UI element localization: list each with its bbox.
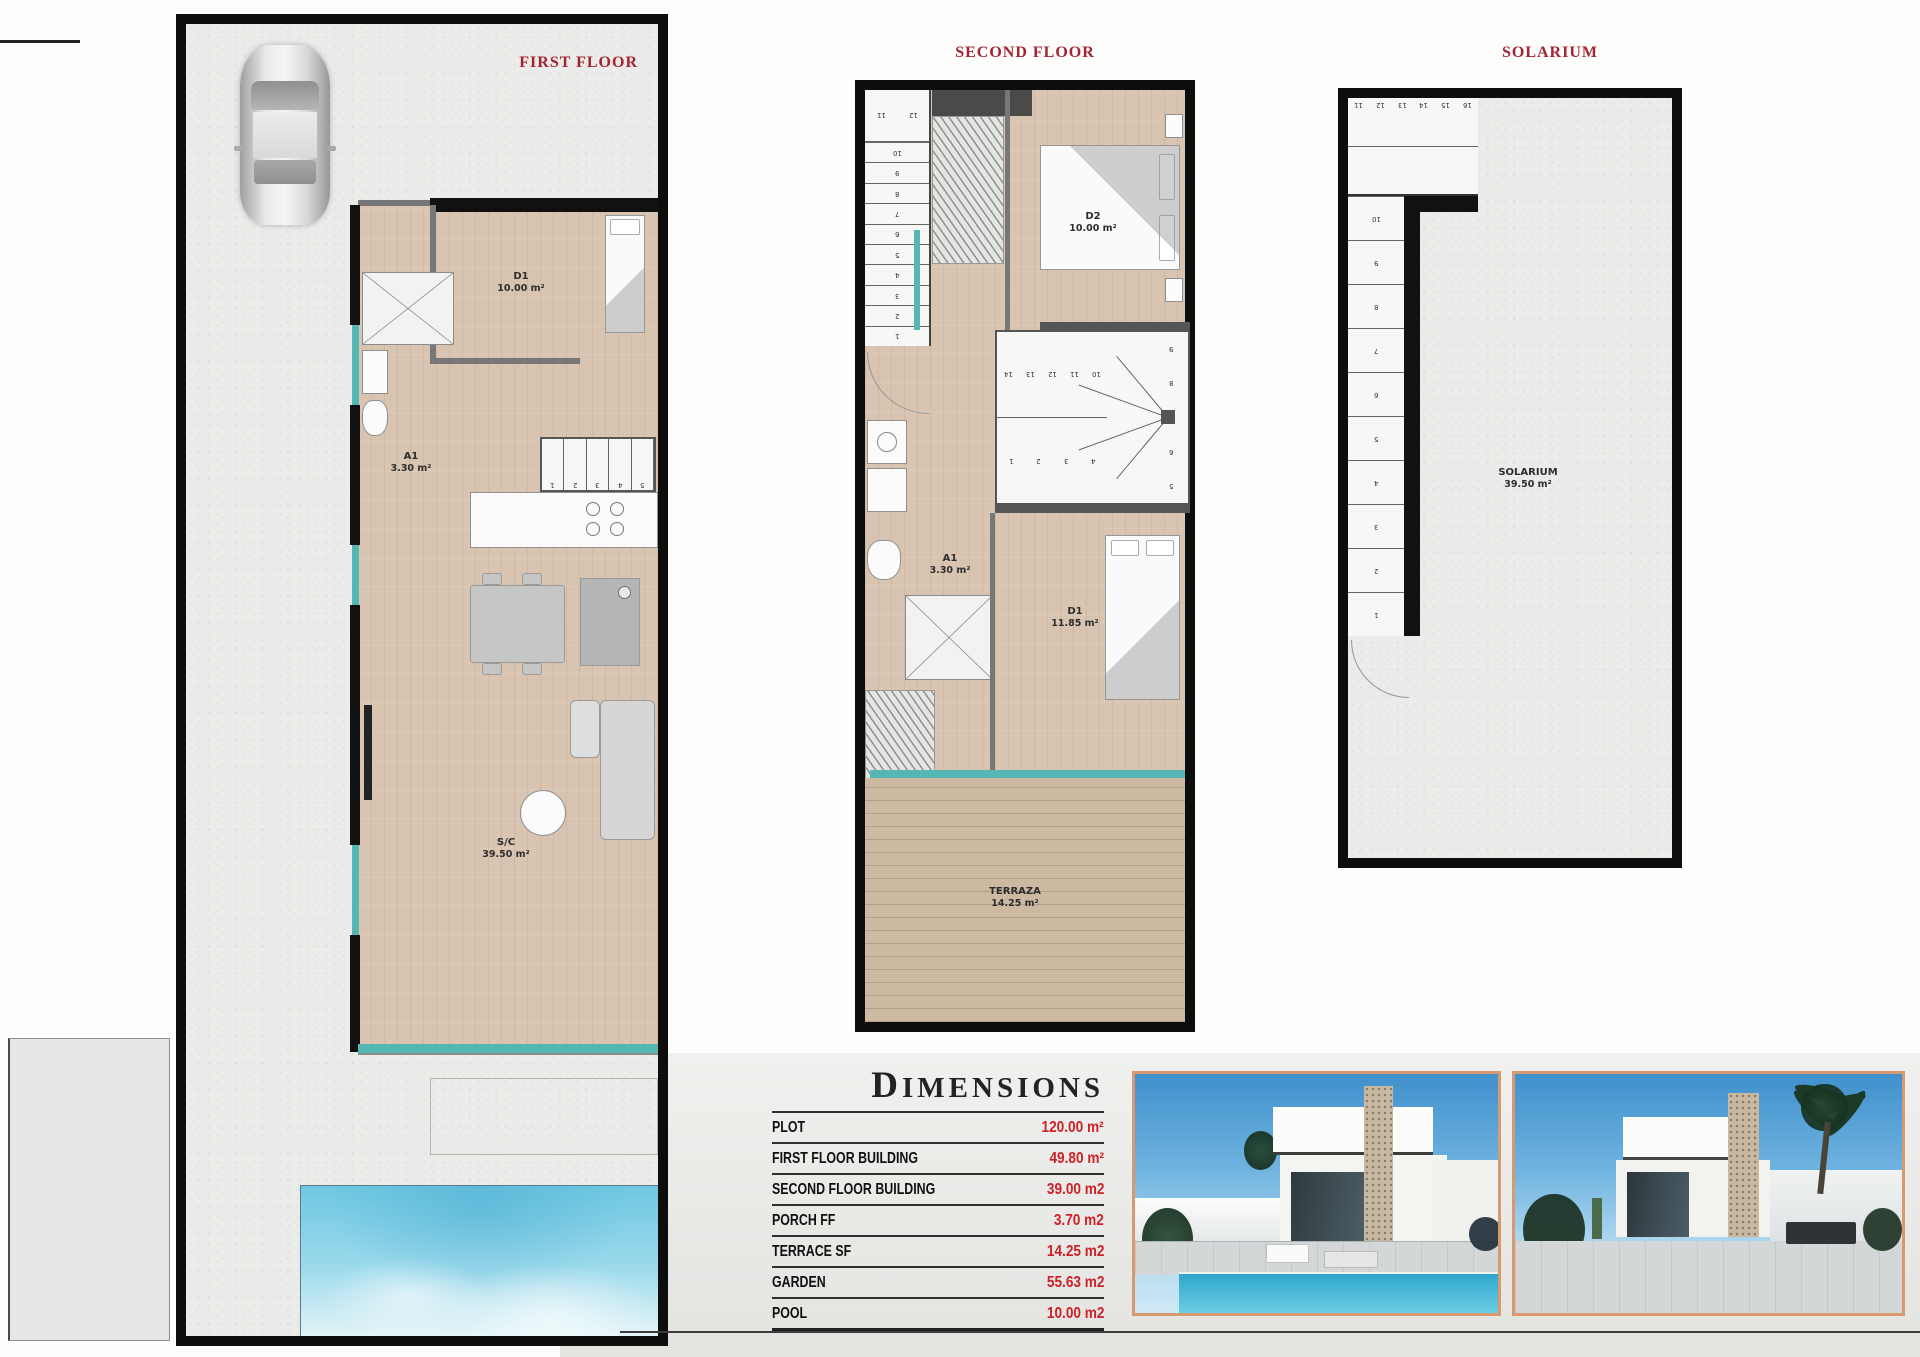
photo-lounger — [1324, 1251, 1378, 1268]
wall — [995, 505, 1190, 513]
stair-step: 5 — [1155, 469, 1188, 503]
wall — [350, 405, 360, 545]
stair-step: 4 — [1080, 420, 1108, 503]
dimensions-rows: PLOT 120.00 m² FIRST FLOOR BUILDING 49.8… — [772, 1111, 1104, 1328]
stair-step: 6 — [1155, 435, 1188, 469]
window-strip — [352, 845, 359, 935]
stove-icon — [584, 500, 636, 540]
wall — [1404, 212, 1420, 636]
stair-newel — [1161, 410, 1175, 424]
stair-step: 9 — [1348, 240, 1404, 284]
photo-pool — [1179, 1272, 1498, 1313]
coffee-table — [520, 790, 566, 836]
car-mirror-left — [234, 146, 243, 151]
window-strip — [358, 1044, 658, 1053]
nightstand — [1165, 278, 1183, 302]
room-name: D1 — [466, 270, 576, 283]
dimension-label: PORCH FF — [772, 1212, 835, 1230]
chair — [522, 573, 542, 585]
stair-step: 13 — [1391, 98, 1413, 194]
nightstand — [1165, 114, 1183, 138]
solarium-stairs-side: 10987654321 — [1348, 196, 1404, 636]
stair-step: 4 — [1348, 460, 1404, 504]
kitchen-island — [580, 578, 640, 666]
stair-step: 14 — [1413, 98, 1435, 194]
wall — [1040, 322, 1190, 330]
photo-glass-wall — [1627, 1172, 1689, 1237]
bed-fold — [1041, 146, 1179, 269]
room-area: 10.00 m² — [466, 283, 576, 295]
shower-tray — [362, 272, 454, 345]
dimensions-table: DIMENSIONS PLOT 120.00 m² FIRST FLOOR BU… — [772, 1064, 1104, 1331]
dimension-value: 10.00 m2 — [1046, 1305, 1104, 1323]
dimension-label: GARDEN — [772, 1274, 826, 1292]
stairs-first-floor: 12345 — [540, 437, 656, 492]
wardrobe-hangers — [932, 116, 1004, 264]
stair-step: 11 — [1063, 332, 1085, 417]
dimension-label: FIRST FLOOR BUILDING — [772, 1150, 918, 1168]
room-area: 39.50 m² — [1463, 479, 1593, 491]
room-name: A1 — [910, 552, 990, 565]
stair-step: 3 — [1348, 504, 1404, 548]
door-swing-arc — [1351, 640, 1409, 698]
chair — [482, 663, 502, 675]
sofa-chaise — [570, 700, 600, 758]
pool — [300, 1185, 658, 1336]
stair-step: 1 — [542, 439, 564, 490]
dimension-value: 55.63 m2 — [1046, 1274, 1104, 1292]
island-sink-icon — [618, 586, 631, 599]
stair-step: 10 — [1348, 196, 1404, 240]
room-label-a1: A1 3.30 m² — [366, 450, 456, 475]
car-rear-window — [254, 160, 315, 183]
window-strip — [352, 545, 359, 605]
room-label-a1-sf: A1 3.30 m² — [910, 552, 990, 577]
room-label-solarium: SOLARIUM 39.50 m² — [1463, 466, 1593, 491]
stair-step: 7 — [865, 203, 929, 223]
porch-outline — [430, 1078, 658, 1155]
dimension-value: 39.00 m2 — [1046, 1181, 1104, 1199]
dimension-row: FIRST FLOOR BUILDING 49.80 m² — [772, 1142, 1104, 1173]
first-floor-title: FIRST FLOOR — [519, 54, 638, 72]
photo-plant — [1863, 1208, 1902, 1251]
dimension-label: POOL — [772, 1305, 807, 1323]
photo-terrace — [1515, 1241, 1902, 1313]
stair-step: 8 — [1348, 284, 1404, 328]
room-name: TERRAZA — [955, 885, 1075, 898]
partition-wall — [1005, 90, 1010, 350]
bed-d1 — [605, 215, 645, 333]
sofa — [600, 700, 655, 840]
bed-d2 — [1040, 145, 1180, 270]
dimension-row: GARDEN 55.63 m2 — [772, 1266, 1104, 1297]
window-strip — [352, 325, 359, 405]
dimension-value: 120.00 m² — [1042, 1119, 1104, 1137]
photo-terrace — [1135, 1241, 1498, 1274]
stair-step: 13 — [1019, 332, 1041, 417]
photo-sofa — [1266, 1244, 1310, 1263]
wall — [358, 200, 430, 206]
stair-step: 3 — [1052, 420, 1080, 503]
dining-table — [470, 585, 565, 663]
closet-shelf — [932, 90, 1032, 116]
cabinet — [867, 468, 907, 512]
dimension-value: 49.80 m² — [1049, 1150, 1104, 1168]
stair-step: 10 — [865, 142, 929, 162]
photo-stone-column — [1728, 1093, 1759, 1236]
room-name: D2 — [1043, 210, 1143, 223]
wall — [350, 605, 360, 845]
stair-step: 6 — [1348, 372, 1404, 416]
room-area: 3.30 m² — [910, 565, 990, 577]
stair-step: 8 — [865, 183, 929, 203]
room-label-d1: D1 10.00 m² — [466, 270, 576, 295]
stairs-to-solarium: 1413121110 1234 98765 — [995, 330, 1190, 505]
wall-line — [358, 1053, 658, 1055]
wall — [350, 935, 360, 1052]
chair — [482, 573, 502, 585]
stair-step: 14 — [997, 332, 1019, 417]
stair-step: 1 — [1348, 592, 1404, 636]
car-windshield — [251, 81, 319, 110]
solarium-title: SOLARIUM — [1400, 44, 1700, 62]
dimension-row: SECOND FLOOR BUILDING 39.00 m2 — [772, 1173, 1104, 1204]
car-top-view — [240, 45, 330, 225]
dimension-label: SECOND FLOOR BUILDING — [772, 1181, 935, 1199]
photo-palm — [1244, 1131, 1277, 1169]
toilet — [362, 400, 388, 436]
room-label-d2: D2 10.00 m² — [1043, 210, 1143, 235]
shower-tray — [905, 595, 993, 680]
stair-step: 12 — [1370, 98, 1392, 194]
partition-wall — [990, 513, 995, 775]
villa-photo-front — [1132, 1071, 1501, 1316]
dimension-value: 14.25 m2 — [1046, 1243, 1104, 1261]
tv-unit — [364, 705, 372, 800]
room-label-sc: S/C 39.50 m² — [436, 836, 576, 861]
second-floor-plan: 1112 10987654321 D2 10.00 m² 1413121110 — [855, 80, 1195, 1032]
room-name: A1 — [366, 450, 456, 463]
car-mirror-right — [327, 146, 336, 151]
washer — [867, 420, 907, 464]
toilet — [867, 540, 901, 580]
stair-step: 1 — [997, 420, 1025, 503]
room-area: 3.30 m² — [366, 463, 456, 475]
photo-cactus — [1592, 1198, 1602, 1239]
stair-step: 2 — [1025, 420, 1053, 503]
wall — [350, 205, 360, 325]
villa-photo-side — [1512, 1071, 1905, 1316]
photo-stone-column — [1364, 1086, 1393, 1244]
stair-step: 11 — [1348, 98, 1370, 194]
dimension-row: POOL 10.00 m2 — [772, 1297, 1104, 1328]
stair-step: 3 — [587, 439, 609, 490]
solarium-plan: 111213141516 10987654321 SOLARIUM 39.50 … — [1338, 88, 1682, 868]
dimension-row: PLOT 120.00 m² — [772, 1111, 1104, 1142]
chair — [522, 663, 542, 675]
door-swing-arc — [867, 352, 929, 414]
room-name: D1 — [1025, 605, 1125, 618]
room-area: 39.50 m² — [436, 849, 576, 861]
stair-step: 8 — [1155, 366, 1188, 400]
neighbour-plot-panel — [8, 1038, 170, 1341]
stair-step: 11 — [865, 90, 897, 141]
dimension-label: PLOT — [772, 1119, 805, 1137]
dimension-value: 3.70 m2 — [1054, 1212, 1104, 1230]
stair-step: 15 — [1435, 98, 1457, 194]
stair-step: 7 — [1348, 328, 1404, 372]
room-name: S/C — [436, 836, 576, 849]
dimension-row: TERRACE SF 14.25 m2 — [772, 1235, 1104, 1266]
sheet-edge-mark — [0, 40, 80, 43]
stairs-upper-landing: 1112 — [865, 90, 929, 142]
photo-sofa-dark — [1786, 1222, 1856, 1244]
first-floor-plan: FIRST FLOOR D1 10. — [176, 14, 668, 1346]
room-area: 10.00 m² — [1043, 223, 1143, 235]
car-roof — [253, 112, 318, 159]
stair-step: 5 — [1348, 416, 1404, 460]
partition-wall — [430, 358, 580, 364]
stair-step: 2 — [1348, 548, 1404, 592]
room-area: 11.85 m² — [1025, 618, 1125, 630]
sink — [362, 350, 388, 394]
glass-strip — [914, 230, 920, 330]
bed-fold — [606, 216, 644, 332]
stair-step: 9 — [865, 162, 929, 182]
sheet-bottom-rule — [620, 1331, 1920, 1333]
window-strip — [870, 770, 1185, 778]
dimension-label: TERRACE SF — [772, 1243, 851, 1261]
room-name: SOLARIUM — [1463, 466, 1593, 479]
photo-planter — [1469, 1217, 1501, 1250]
second-floor-title: SECOND FLOOR — [855, 44, 1195, 62]
wall — [430, 198, 658, 212]
room-label-terraza: TERRAZA 14.25 m² — [955, 885, 1075, 910]
stair-step: 4 — [609, 439, 631, 490]
stair-step: 9 — [1155, 332, 1188, 366]
stair-step: 10 — [1085, 332, 1107, 417]
dimension-row: PORCH FF 3.70 m2 — [772, 1204, 1104, 1235]
stair-step: 16 — [1456, 98, 1478, 194]
wall — [1404, 196, 1478, 212]
stair-step: 12 — [897, 90, 929, 141]
room-area: 14.25 m² — [955, 898, 1075, 910]
stair-step: 2 — [564, 439, 586, 490]
floor-plan-sheet: FIRST FLOOR D1 10. — [0, 0, 1920, 1357]
stair-step: 5 — [632, 439, 654, 490]
solarium-stairs-top: 111213141516 — [1348, 98, 1478, 196]
stair-step: 12 — [1041, 332, 1063, 417]
room-label-d1-sf: D1 11.85 m² — [1025, 605, 1125, 630]
photo-villa-upper — [1273, 1107, 1433, 1155]
dimensions-title: DIMENSIONS — [772, 1064, 1104, 1107]
